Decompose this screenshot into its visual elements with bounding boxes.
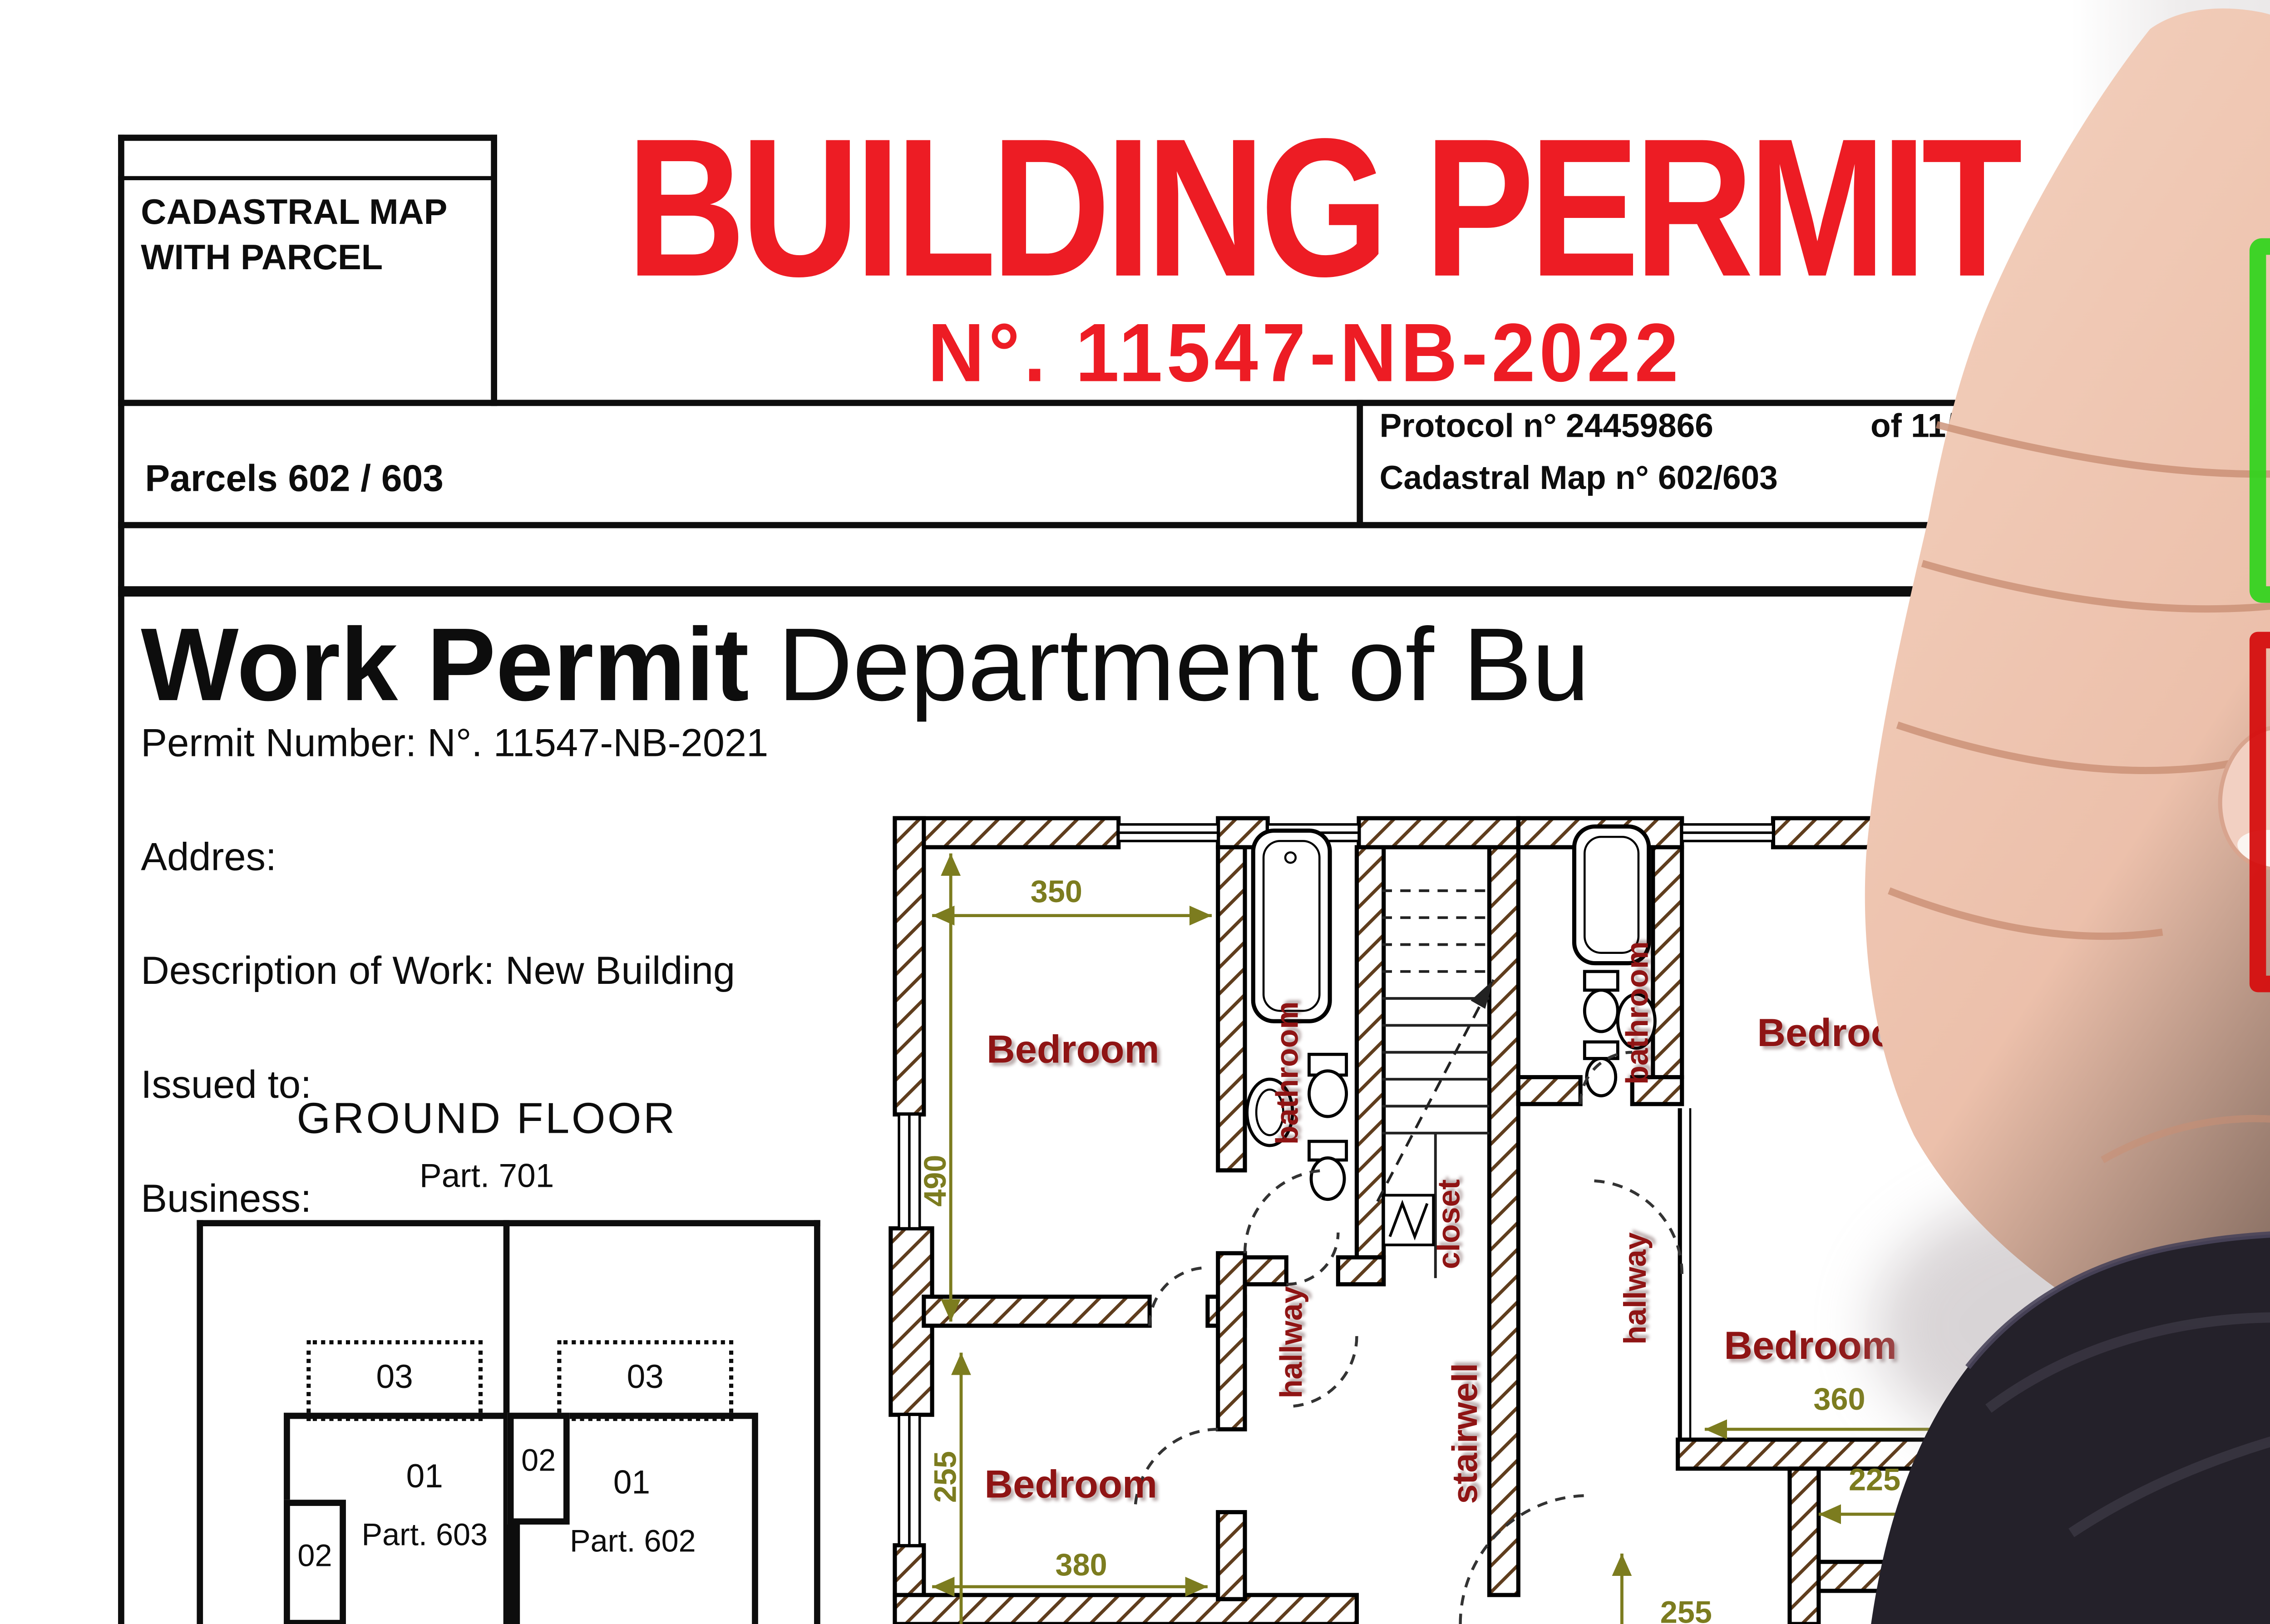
- hand-skin: [1865, 9, 2270, 1388]
- pen-icon: [2258, 415, 2270, 642]
- photo-composite: CADASTRAL MAP WITH PARCEL BUILDING PERMI…: [0, 0, 2270, 1624]
- rejected-checkbox: [2250, 632, 2270, 992]
- hand-photo: [0, 0, 2270, 1624]
